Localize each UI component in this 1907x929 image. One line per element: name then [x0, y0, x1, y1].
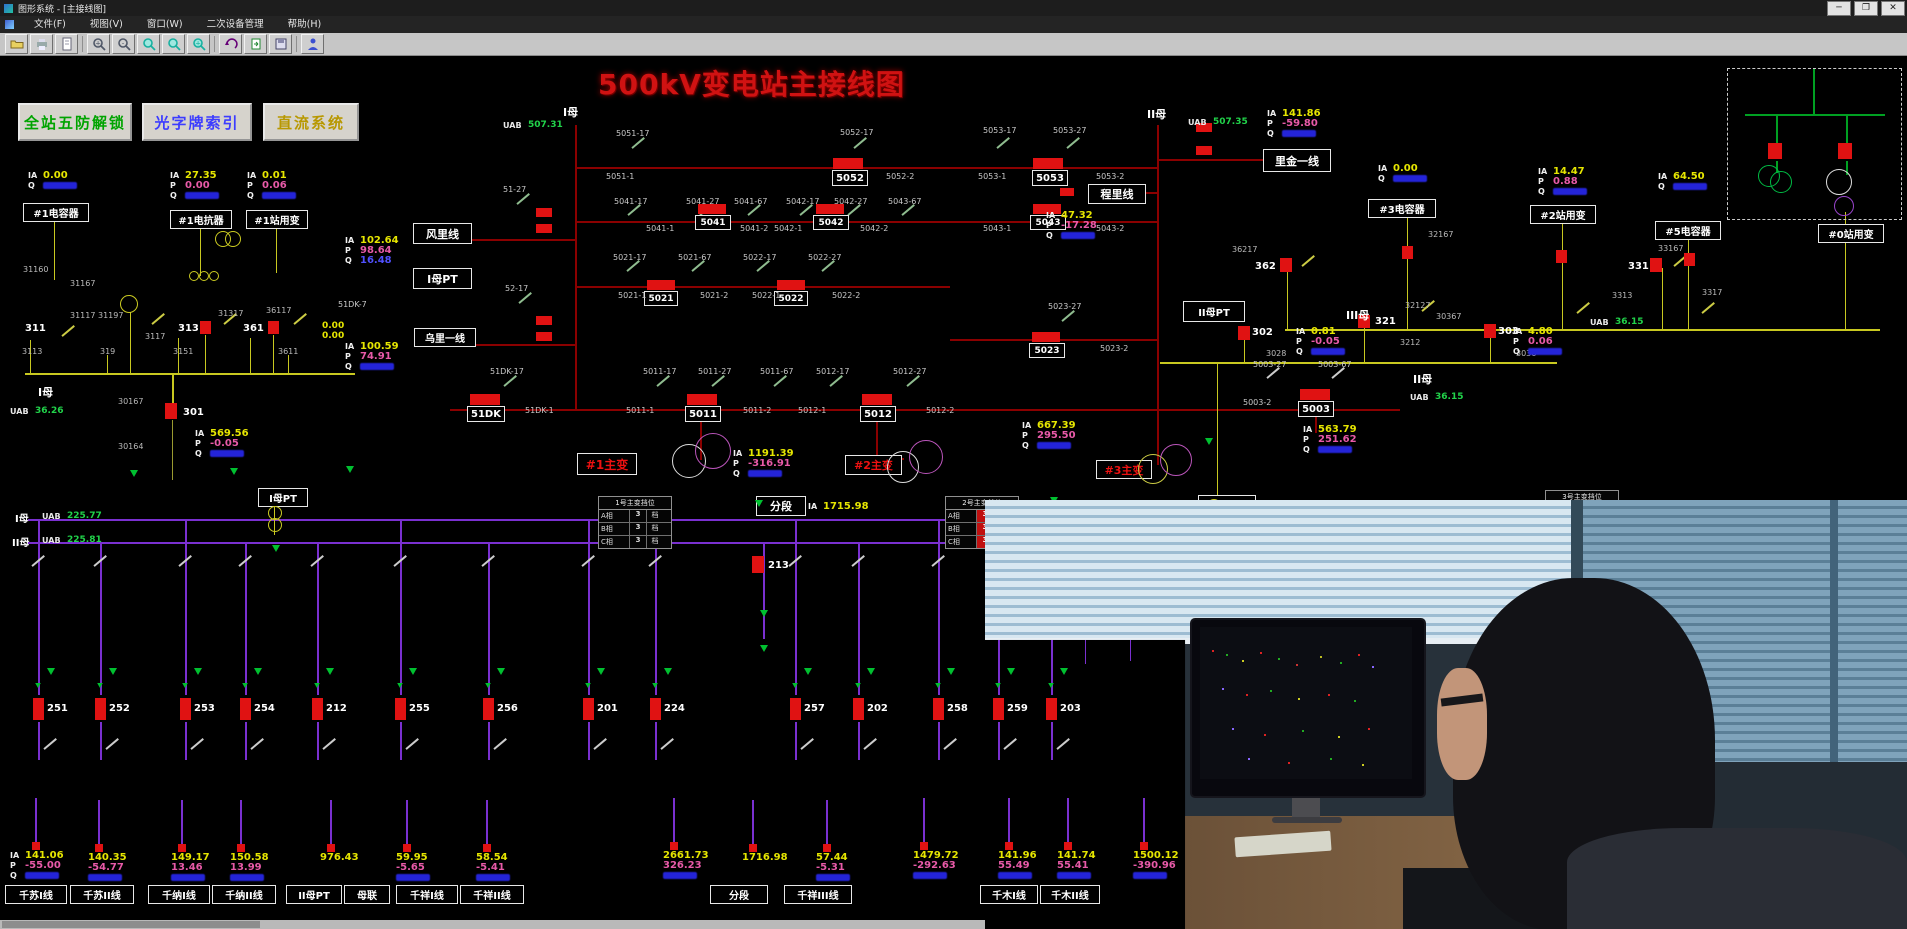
telemetry-value: 251.62	[1318, 434, 1357, 445]
label-box[interactable]: 里金一线	[1263, 149, 1331, 172]
bus-line	[205, 335, 206, 373]
save-button[interactable]	[269, 34, 292, 54]
telemetry-row: Q	[1046, 230, 1097, 240]
disconnect-switch[interactable]	[190, 738, 203, 749]
menu-item-2[interactable]: 窗口(W)	[135, 16, 195, 33]
disconnect-switch[interactable]	[1701, 302, 1714, 313]
telemetry-key: Q	[733, 469, 745, 478]
grounding-arrow-icon	[947, 668, 955, 675]
user-button[interactable]	[301, 34, 324, 54]
telemetry-value: 0.00	[185, 180, 210, 191]
diagram-text: 36.15	[1615, 317, 1643, 327]
telemetry-key: Q	[1267, 129, 1279, 138]
telemetry-value-blue	[1037, 442, 1071, 449]
telemetry-value: -55.00	[25, 860, 61, 871]
transformer-winding-icon	[189, 271, 199, 281]
quick-button-0[interactable]: 全站五防解锁	[18, 103, 132, 141]
diagram-text: 5012-27	[893, 367, 926, 376]
telemetry-group: 59.95-5.65	[381, 852, 430, 882]
label-box[interactable]: 千苏II线	[70, 885, 134, 904]
diagram-text: 5042-1	[774, 224, 802, 233]
telemetry-row: Q	[247, 190, 296, 200]
feeder-line	[655, 542, 657, 695]
undo-icon	[224, 37, 238, 51]
grounding-arrow-icon	[230, 468, 238, 475]
breaker-closed-indicator[interactable]	[268, 321, 279, 334]
minimize-button[interactable]: ─	[1827, 1, 1851, 16]
label-box[interactable]: 程里线	[1088, 184, 1146, 204]
diagram-text: UAB	[1410, 393, 1429, 402]
feeder-breaker[interactable]	[790, 698, 801, 720]
feeder-line	[488, 542, 490, 695]
label-box[interactable]: 分段	[756, 496, 806, 516]
telemetry-value-blue	[1673, 183, 1707, 190]
disconnect-switch[interactable]	[631, 137, 644, 148]
telemetry-row: P0.06	[1513, 336, 1562, 346]
disconnect-switch[interactable]	[660, 738, 673, 749]
telemetry-row: P0.88	[1538, 176, 1587, 186]
disconnect-switch[interactable]	[1003, 738, 1016, 749]
monitor-base	[1272, 817, 1342, 823]
diagram-text: 331	[1628, 261, 1649, 272]
breaker-closed-indicator[interactable]	[1032, 332, 1060, 342]
telemetry-key: P	[1267, 119, 1279, 128]
telemetry-value: 0.06	[262, 180, 287, 191]
telemetry-key: IA	[1513, 327, 1525, 336]
feeder-breaker[interactable]	[95, 698, 106, 720]
telemetry-value: 1715.98	[823, 501, 869, 512]
bus-line	[1490, 338, 1491, 363]
telemetry-value-blue	[1553, 188, 1587, 195]
telemetry-row: Q	[1022, 440, 1076, 450]
label-box[interactable]: 51DK	[467, 406, 505, 422]
telemetry-row: IA14.47	[1538, 166, 1587, 176]
telemetry-row: IA0.00	[28, 170, 77, 180]
diagram-text: 52-17	[505, 284, 528, 293]
label-box[interactable]: 千苏I线	[5, 885, 67, 904]
label-box[interactable]: 千木II线	[1040, 885, 1100, 904]
disconnect-switch[interactable]	[863, 738, 876, 749]
telemetry-row: P-55.00	[10, 860, 64, 870]
maximize-button[interactable]: ❐	[1854, 1, 1878, 16]
breaker-closed-indicator[interactable]	[536, 208, 552, 217]
zoom-in-icon: +	[92, 37, 106, 51]
label-box[interactable]: 5011	[685, 406, 721, 422]
feeder-breaker[interactable]	[312, 698, 323, 720]
disconnect-switch[interactable]	[1061, 310, 1074, 321]
breaker-closed-indicator[interactable]	[1556, 250, 1567, 263]
label-box[interactable]: 千祥III线	[784, 885, 852, 904]
bus-line	[276, 228, 277, 273]
disconnect-switch[interactable]	[322, 738, 335, 749]
breaker-closed-indicator[interactable]	[536, 332, 552, 341]
feeder-breaker[interactable]	[1046, 698, 1057, 720]
label-box[interactable]: 千纳II线	[212, 885, 276, 904]
telemetry-key: Q	[1513, 347, 1525, 356]
grounding-arrow-icon	[935, 683, 941, 688]
label-box[interactable]: 5041	[695, 215, 731, 230]
undo-button[interactable]	[219, 34, 242, 54]
menu-item-0[interactable]: 文件(F)	[22, 16, 78, 33]
disconnect-switch[interactable]	[773, 375, 786, 386]
telemetry-row: IA141.06	[10, 850, 64, 860]
breaker-closed-indicator[interactable]	[1060, 188, 1074, 196]
disconnect-switch[interactable]	[405, 738, 418, 749]
diagram-text: 32167	[1428, 230, 1453, 239]
label-box[interactable]: 千木I线	[980, 885, 1038, 904]
disconnect-switch[interactable]	[1056, 738, 1069, 749]
bus-line	[1287, 268, 1288, 329]
feeder-breaker[interactable]	[240, 698, 251, 720]
telemetry-group: IA102.64P98.64Q16.48	[345, 235, 399, 265]
zoom-dynamic-button[interactable]	[162, 34, 185, 54]
breaker-closed-indicator[interactable]	[536, 224, 552, 233]
breaker-closed-indicator[interactable]	[777, 280, 805, 290]
telemetry-group: 1479.72-292.63	[898, 850, 959, 880]
telemetry-key: IA	[247, 171, 259, 180]
disconnect-switch[interactable]	[1066, 137, 1079, 148]
telemetry-group: 149.1713.46	[156, 852, 210, 882]
feeder-drop-line	[752, 800, 754, 846]
disconnect-switch[interactable]	[800, 738, 813, 749]
telemetry-key: IA	[1022, 421, 1034, 430]
bus-line	[470, 239, 575, 241]
breaker-closed-indicator[interactable]	[200, 321, 211, 334]
disconnect-switch[interactable]	[1576, 302, 1589, 313]
disconnect-switch[interactable]	[250, 738, 263, 749]
feeder-breaker[interactable]	[583, 698, 594, 720]
disconnect-switch[interactable]	[593, 738, 606, 749]
diagram-text: 5021-1	[618, 291, 646, 300]
label-box[interactable]: #3电容器	[1368, 199, 1436, 218]
label-box[interactable]: 5053	[1032, 170, 1068, 186]
breaker-closed-indicator[interactable]	[1196, 146, 1212, 155]
diagram-text: 5053-1	[978, 172, 1006, 181]
telemetry-row: IA667.39	[1022, 420, 1076, 430]
feeder-line	[858, 542, 860, 695]
telemetry-row: 13.99	[215, 862, 269, 872]
disconnect-switch[interactable]	[996, 137, 1009, 148]
menu-item-3[interactable]: 二次设备管理	[195, 16, 276, 33]
telemetry-group: IA141.06P-55.00Q	[10, 850, 64, 880]
tap-unit: 档	[647, 510, 663, 522]
feeder-line	[938, 519, 940, 695]
telemetry-row: -292.63	[898, 860, 959, 870]
diagram-text: 5041-1	[646, 224, 674, 233]
label-box[interactable]: #2站用变	[1530, 205, 1596, 224]
feeder-breaker[interactable]	[853, 698, 864, 720]
diagram-text: 5011-1	[626, 406, 654, 415]
bus-line	[54, 222, 55, 280]
label-box[interactable]: #0站用变	[1818, 224, 1884, 243]
label-box[interactable]: #1电抗器	[170, 210, 232, 229]
breaker-closed-indicator[interactable]	[687, 394, 717, 405]
disconnect-switch[interactable]	[829, 375, 842, 386]
telemetry-key: IA	[345, 342, 357, 351]
telemetry-row: IA1191.39	[733, 448, 794, 458]
telemetry-value: 976.43	[320, 852, 359, 863]
diagram-text: 5021-67	[678, 253, 711, 262]
diagram-text: I母	[563, 104, 578, 120]
telemetry-group: IA1191.39P-316.91Q	[733, 448, 794, 478]
breaker-closed-indicator[interactable]	[833, 158, 863, 169]
line-connector	[823, 844, 831, 852]
label-box[interactable]: #1电容器	[23, 203, 89, 222]
feeder-breaker[interactable]	[395, 698, 406, 720]
telemetry-group: IA27.35P0.00Q	[170, 170, 219, 200]
bus-line	[575, 286, 950, 288]
diagram-text: UAB	[10, 407, 29, 416]
zoom-region-icon	[142, 37, 156, 51]
disconnect-switch[interactable]	[151, 313, 164, 324]
telemetry-value-blue	[1318, 446, 1352, 453]
refresh-button[interactable]	[244, 34, 267, 54]
close-button[interactable]: ✕	[1881, 1, 1905, 16]
diagram-text: 51-27	[503, 185, 526, 194]
breaker-closed-indicator[interactable]	[1650, 258, 1662, 272]
feeder-breaker[interactable]	[33, 698, 44, 720]
open-button[interactable]	[5, 34, 28, 54]
grounding-arrow-icon	[995, 683, 1001, 688]
menu-item-4[interactable]: 帮助(H)	[276, 16, 334, 33]
monitor-screen	[1200, 627, 1412, 779]
telemetry-key: P	[10, 861, 22, 870]
label-box[interactable]: #5电容器	[1655, 221, 1721, 240]
quick-button-2[interactable]: 直流系统	[263, 103, 359, 141]
label-box[interactable]: 千纳I线	[148, 885, 210, 904]
telemetry-group: IA14.47P0.88Q	[1538, 166, 1587, 196]
bus-line	[28, 542, 985, 544]
telemetry-value: 0.00	[1393, 163, 1418, 174]
telemetry-group: IA569.56P-0.05Q	[195, 428, 249, 458]
disconnect-switch[interactable]	[105, 738, 118, 749]
disconnect-switch[interactable]	[516, 193, 529, 204]
scrollbar-thumb[interactable]	[2, 921, 260, 928]
bus-line	[1285, 329, 1880, 331]
grounding-arrow-icon	[35, 683, 41, 688]
disconnect-switch[interactable]	[493, 738, 506, 749]
diagram-text: 319	[100, 347, 115, 356]
breaker-closed-indicator[interactable]	[1484, 324, 1496, 338]
feeder-breaker[interactable]	[650, 698, 661, 720]
telemetry-group: 2661.73326.23	[648, 850, 709, 880]
bus-line	[1160, 362, 1557, 364]
disconnect-switch[interactable]	[518, 292, 531, 303]
disconnect-switch[interactable]	[503, 375, 516, 386]
telemetry-row: Q16.48	[345, 255, 399, 265]
quick-button-1[interactable]: 光字牌索引	[142, 103, 252, 141]
diagram-text: 30164	[118, 442, 143, 451]
telemetry-value: -5.65	[396, 862, 425, 873]
diagram-title: 500kV变电站主接线图	[598, 63, 905, 103]
breaker-closed-indicator[interactable]	[752, 556, 764, 573]
label-box[interactable]: 分段	[710, 885, 768, 904]
breaker-closed-indicator[interactable]	[536, 316, 552, 325]
diagram-text: 5022-17	[743, 253, 776, 262]
grounding-arrow-icon	[47, 668, 55, 675]
telemetry-value: 295.50	[1037, 430, 1076, 441]
breaker-closed-indicator[interactable]	[470, 394, 500, 405]
telemetry-value: -316.91	[748, 458, 791, 469]
bus-line	[1364, 328, 1365, 363]
diagram-text: 5023-27	[1048, 302, 1081, 311]
diagram-text: 5051-17	[616, 129, 649, 138]
telemetry-value-blue	[88, 874, 122, 881]
disconnect-switch[interactable]	[853, 137, 866, 148]
feeder-breaker[interactable]	[933, 698, 944, 720]
line-connector	[32, 842, 40, 850]
label-box[interactable]: #1站用变	[246, 210, 308, 229]
breaker-closed-indicator[interactable]	[1280, 258, 1292, 272]
diagram-text: UAB	[503, 121, 522, 130]
telemetry-value-blue	[230, 874, 264, 881]
telemetry-key: IA	[1267, 109, 1279, 118]
telemetry-key: P	[1538, 177, 1550, 186]
zoom-region-button[interactable]	[137, 34, 160, 54]
menu-item-1[interactable]: 视图(V)	[78, 16, 135, 33]
disconnect-switch[interactable]	[906, 375, 919, 386]
disconnect-switch[interactable]	[43, 738, 56, 749]
breaker-closed-indicator[interactable]	[1684, 253, 1695, 266]
telemetry-value: 0.06	[1528, 336, 1553, 347]
diagram-text: 3151	[173, 347, 193, 356]
bus-line	[107, 355, 108, 373]
person-shoulder	[1567, 828, 1907, 929]
telemetry-row: IA47.32	[1046, 210, 1097, 220]
telemetry-key: IA	[1378, 164, 1390, 173]
label-box[interactable]: 乌里一线	[414, 328, 476, 347]
telemetry-key: P	[195, 439, 207, 448]
telemetry-value: 1716.98	[742, 852, 788, 863]
breaker-closed-indicator[interactable]	[862, 394, 892, 405]
telemetry-value: -5.41	[476, 862, 505, 873]
diagram-text: 311	[25, 323, 46, 334]
telemetry-key: IA	[1538, 167, 1550, 176]
feeder-drop-line	[406, 800, 408, 846]
label-box[interactable]: #1主变	[577, 453, 637, 475]
label-box[interactable]: 5012	[860, 406, 896, 422]
grounding-arrow-icon	[855, 683, 861, 688]
transformer-winding-icon	[120, 295, 138, 313]
telemetry-row: -54.77	[73, 862, 127, 872]
label-box[interactable]: 风里线	[413, 223, 472, 244]
feeder-line	[185, 519, 187, 695]
zoom-in-button[interactable]: +	[87, 34, 110, 54]
disconnect-switch[interactable]	[61, 325, 74, 336]
breaker-closed-indicator[interactable]	[1402, 246, 1413, 259]
zoom-find-button[interactable]: +	[187, 34, 210, 54]
diagram-text: 5042-2	[860, 224, 888, 233]
feeder-line	[795, 722, 797, 760]
label-box[interactable]: 千祥II线	[460, 885, 524, 904]
breaker-closed-indicator[interactable]	[1033, 158, 1063, 169]
disconnect-switch[interactable]	[711, 375, 724, 386]
feeder-breaker[interactable]	[993, 698, 1004, 720]
bus-line	[30, 340, 31, 373]
diagram-text: UAB	[42, 536, 61, 545]
diagram-text: UAB	[1590, 318, 1609, 327]
telemetry-row: IA4.80	[1513, 326, 1562, 336]
feeder-line	[245, 542, 247, 695]
diagram-text: 5011-2	[743, 406, 771, 415]
feeder-line	[400, 722, 402, 760]
line-connector	[95, 844, 103, 852]
label-box[interactable]: 5042	[813, 215, 849, 230]
disconnect-switch[interactable]	[943, 738, 956, 749]
feeder-breaker[interactable]	[483, 698, 494, 720]
telemetry-key: Q	[170, 191, 182, 200]
feeder-line	[858, 722, 860, 760]
label-box[interactable]: I母PT	[413, 268, 472, 289]
label-box[interactable]: II母PT	[286, 885, 342, 904]
telemetry-row: Q	[1658, 181, 1707, 191]
telemetry-value-blue	[1311, 348, 1345, 355]
disconnect-switch[interactable]	[656, 375, 669, 386]
disconnect-switch[interactable]	[293, 313, 306, 324]
disconnect-switch[interactable]	[1301, 255, 1314, 266]
telemetry-key: IA	[195, 429, 207, 438]
phase-label: A相	[946, 510, 977, 522]
print-button[interactable]	[30, 34, 53, 54]
breaker-closed-indicator[interactable]	[1238, 326, 1250, 340]
telemetry-row: 1716.98	[727, 852, 788, 862]
breaker-closed-indicator[interactable]	[165, 403, 177, 419]
telemetry-row: IA141.86	[1267, 108, 1321, 118]
bus-line	[288, 355, 289, 373]
print-preview-button[interactable]	[55, 34, 78, 54]
horizontal-scrollbar[interactable]	[0, 920, 985, 929]
diagram-text: 5043-67	[888, 197, 921, 206]
grounding-arrow-icon	[1205, 438, 1213, 445]
label-box[interactable]: II母PT	[1183, 301, 1245, 322]
zoom-out-button[interactable]: -	[112, 34, 135, 54]
bus-line	[1562, 220, 1563, 329]
telemetry-row	[73, 872, 127, 882]
telemetry-value: 74.91	[360, 351, 392, 362]
bus-line	[250, 338, 251, 373]
telemetry-row: P-0.05	[1296, 336, 1345, 346]
telemetry-value: 13.99	[230, 862, 262, 873]
diagram-text: 36.26	[35, 406, 63, 416]
telemetry-row	[1042, 870, 1096, 880]
label-box[interactable]: 5021	[644, 291, 678, 306]
breaker-closed-indicator[interactable]	[1300, 389, 1330, 400]
label-box[interactable]: I母PT	[258, 488, 308, 507]
diagram-text: 31117	[70, 311, 95, 320]
label-box[interactable]: 5023	[1029, 343, 1065, 358]
diagram-text: 302	[1252, 327, 1273, 338]
label-box[interactable]: 5052	[832, 170, 868, 186]
diagram-text: 362	[1255, 261, 1276, 272]
diagram-text: 36.15	[1435, 392, 1463, 402]
diagram-text: 5041-17	[614, 197, 647, 206]
label-box[interactable]: 母联	[344, 885, 390, 904]
diagram-text: 5053-17	[983, 126, 1016, 135]
feeder-breaker[interactable]	[180, 698, 191, 720]
bus-line	[450, 409, 1400, 411]
feeder-drop-line	[181, 800, 183, 846]
telemetry-value: -0.05	[210, 438, 239, 449]
feeder-line	[400, 519, 402, 695]
grounding-arrow-icon	[397, 683, 403, 688]
transformer-winding-icon	[199, 271, 209, 281]
telemetry-group: 1500.12-390.96	[1118, 850, 1179, 880]
breaker-closed-indicator[interactable]	[647, 280, 675, 290]
app-icon	[4, 4, 13, 13]
label-box[interactable]: 5003	[1298, 401, 1334, 417]
label-box[interactable]: 千祥I线	[396, 885, 458, 904]
bus-line	[1688, 236, 1689, 329]
